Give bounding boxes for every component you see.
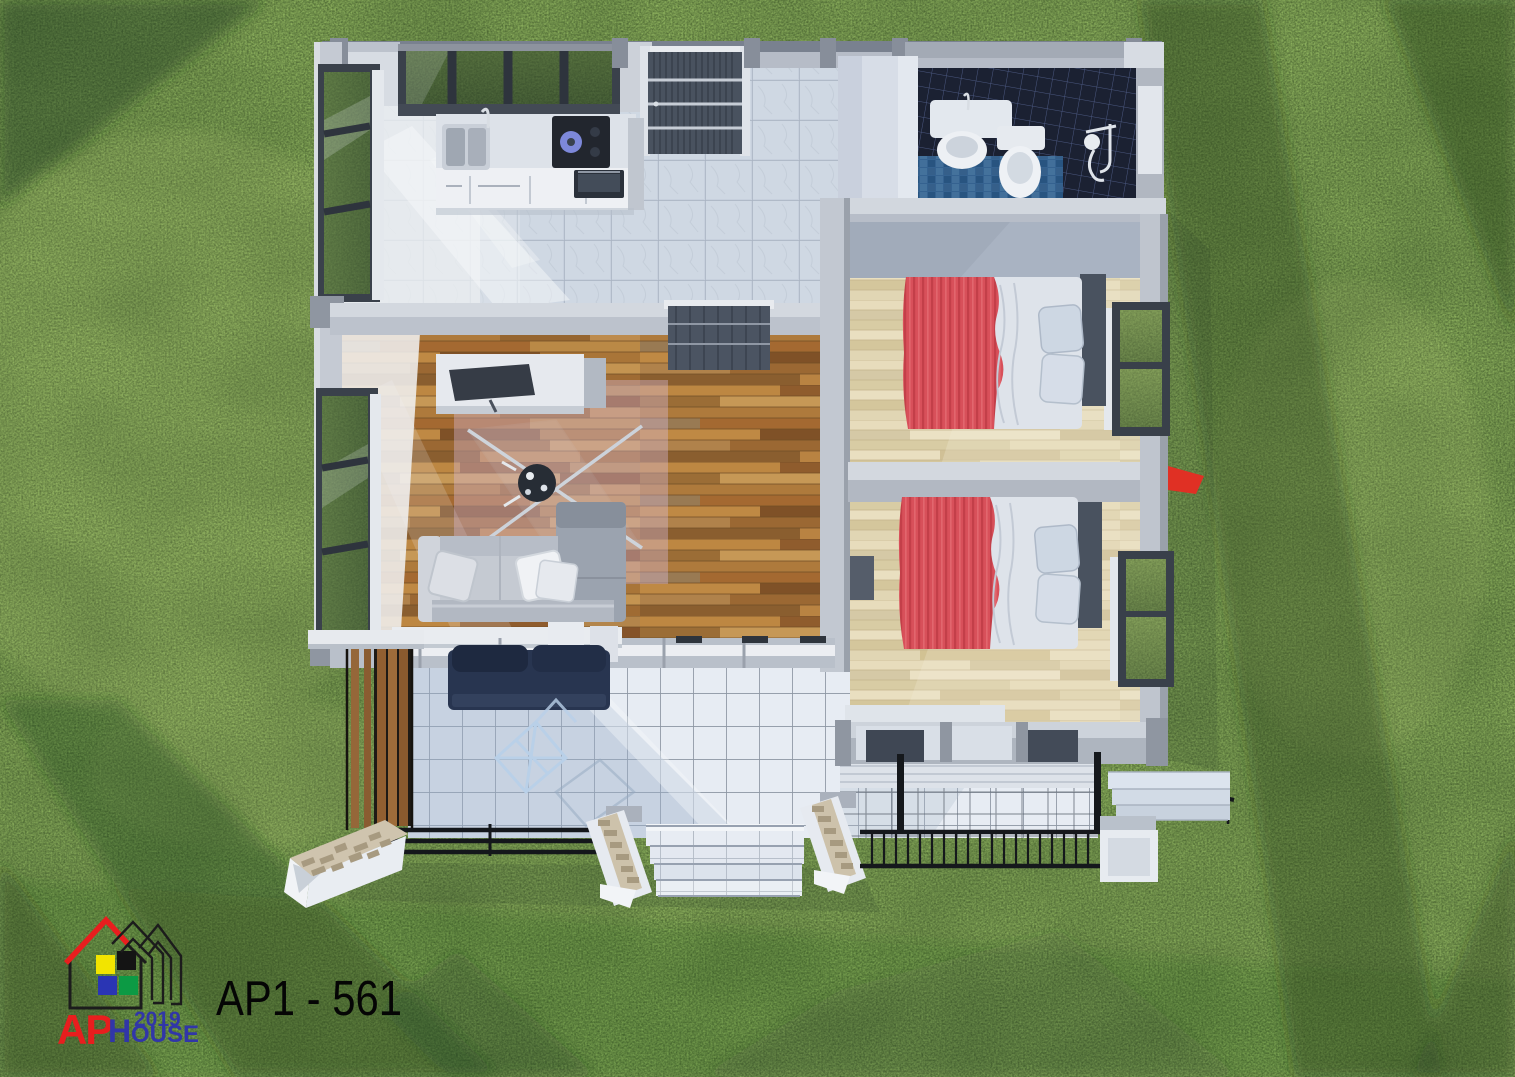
svg-text:2019: 2019 <box>134 1008 181 1031</box>
svg-text:H: H <box>108 1013 131 1049</box>
svg-text:AP: AP <box>57 1006 112 1053</box>
svg-text:AP1 - 561: AP1 - 561 <box>216 972 402 1026</box>
